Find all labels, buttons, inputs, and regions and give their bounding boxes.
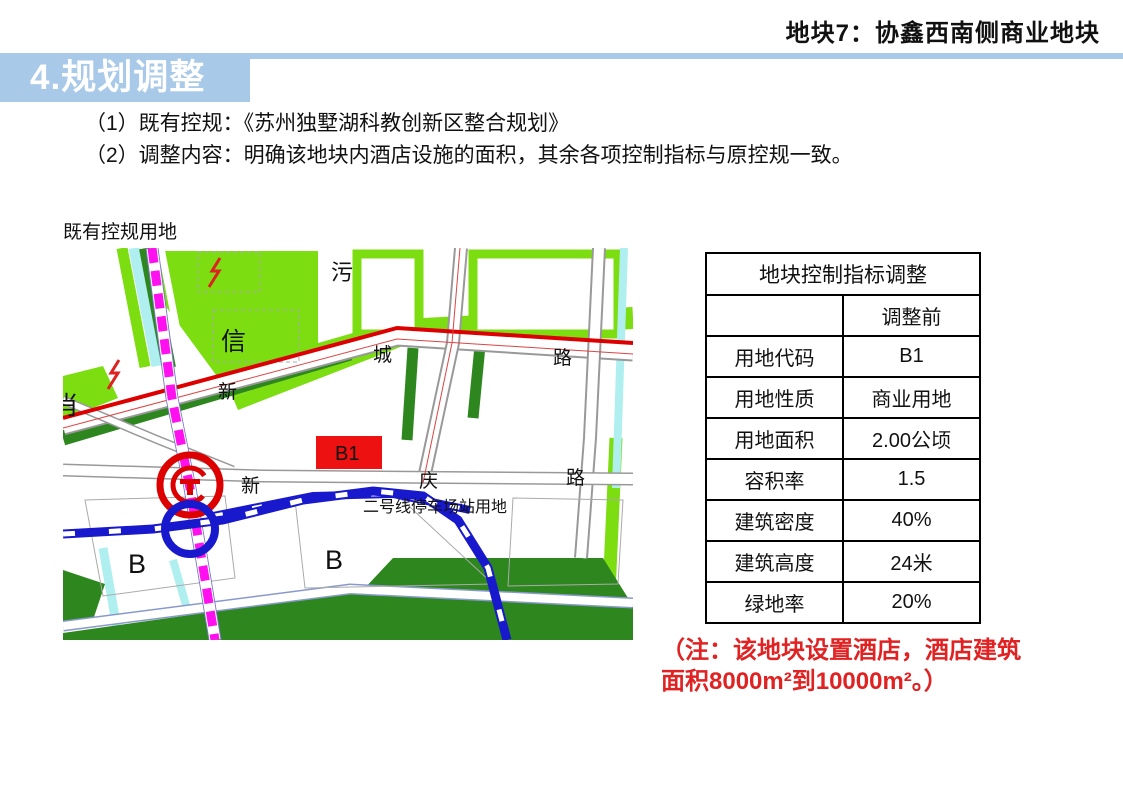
- label-road-top-3: 路: [553, 347, 572, 369]
- note-text: （注：该地块设置酒店，酒店建筑 面积8000m²到10000m²。）: [661, 635, 1061, 697]
- control-indicator-table: 地块控制指标调整 调整前 用地代码B1用地性质商业用地用地面积2.00公顷容积率…: [705, 252, 981, 624]
- table-title-row: 地块控制指标调整: [706, 253, 980, 295]
- intro-text: （1）既有控规：《苏州独墅湖科教创新区整合规划》 （2）调整内容：明确该地块内酒…: [85, 108, 853, 172]
- indicator-value-cell: B1: [843, 336, 980, 377]
- indicator-value-cell: 1.5: [843, 459, 980, 500]
- label-road-mid-2: 庆: [419, 470, 438, 492]
- table-header-row: 调整前: [706, 295, 980, 336]
- table-header-empty-cell: [706, 295, 843, 336]
- b1-parcel-label: B1: [335, 443, 359, 465]
- label-road-mid-3: 路: [566, 467, 585, 489]
- label-road-top-2: 城: [373, 344, 392, 366]
- indicator-name-cell: 用地面积: [706, 418, 843, 459]
- indicator-value-cell: 24米: [843, 541, 980, 582]
- label-b-right: B: [325, 545, 343, 575]
- planning-map: B1 污 信 肖 新 城 路 新 庆 路 B B 二号线停车场站用地: [63, 248, 633, 640]
- table-row: 建筑高度24米: [706, 541, 980, 582]
- table-row: 绿地率20%: [706, 582, 980, 623]
- note-line-1: （注：该地块设置酒店，酒店建筑: [661, 635, 1061, 666]
- intro-line-2: （2）调整内容：明确该地块内酒店设施的面积，其余各项控制指标与原控规一致。: [85, 140, 853, 172]
- table-row: 用地代码B1: [706, 336, 980, 377]
- label-b-left: B: [128, 549, 146, 579]
- label-xiao: 肖: [63, 392, 79, 420]
- table-row: 建筑密度40%: [706, 500, 980, 541]
- indicator-name-cell: 建筑密度: [706, 500, 843, 541]
- page-title: 地块7：协鑫西南侧商业地块: [786, 13, 1100, 48]
- indicator-name-cell: 建筑高度: [706, 541, 843, 582]
- note-line-2: 面积8000m²到10000m²。）: [661, 666, 1061, 697]
- label-depot: 二号线停车场站用地: [363, 498, 507, 516]
- table-row: 用地面积2.00公顷: [706, 418, 980, 459]
- label-road-top-1: 新: [218, 381, 237, 403]
- indicator-name-cell: 用地性质: [706, 377, 843, 418]
- indicator-name-cell: 绿地率: [706, 582, 843, 623]
- indicator-name-cell: 用地代码: [706, 336, 843, 377]
- indicator-value-cell: 40%: [843, 500, 980, 541]
- map-caption: 既有控规用地: [63, 217, 177, 244]
- table-title: 地块控制指标调整: [706, 253, 980, 295]
- indicator-value-cell: 20%: [843, 582, 980, 623]
- section-title-banner: 4.规划调整: [0, 53, 250, 102]
- indicator-value-cell: 2.00公顷: [843, 418, 980, 459]
- label-xin: 信: [221, 328, 246, 356]
- table-row: 容积率1.5: [706, 459, 980, 500]
- label-wu: 污: [331, 260, 353, 285]
- table-row: 用地性质商业用地: [706, 377, 980, 418]
- intro-line-1: （1）既有控规：《苏州独墅湖科教创新区整合规划》: [85, 108, 853, 140]
- table-header-before-cell: 调整前: [843, 295, 980, 336]
- indicator-value-cell: 商业用地: [843, 377, 980, 418]
- indicator-name-cell: 容积率: [706, 459, 843, 500]
- label-road-mid-1: 新: [241, 475, 260, 497]
